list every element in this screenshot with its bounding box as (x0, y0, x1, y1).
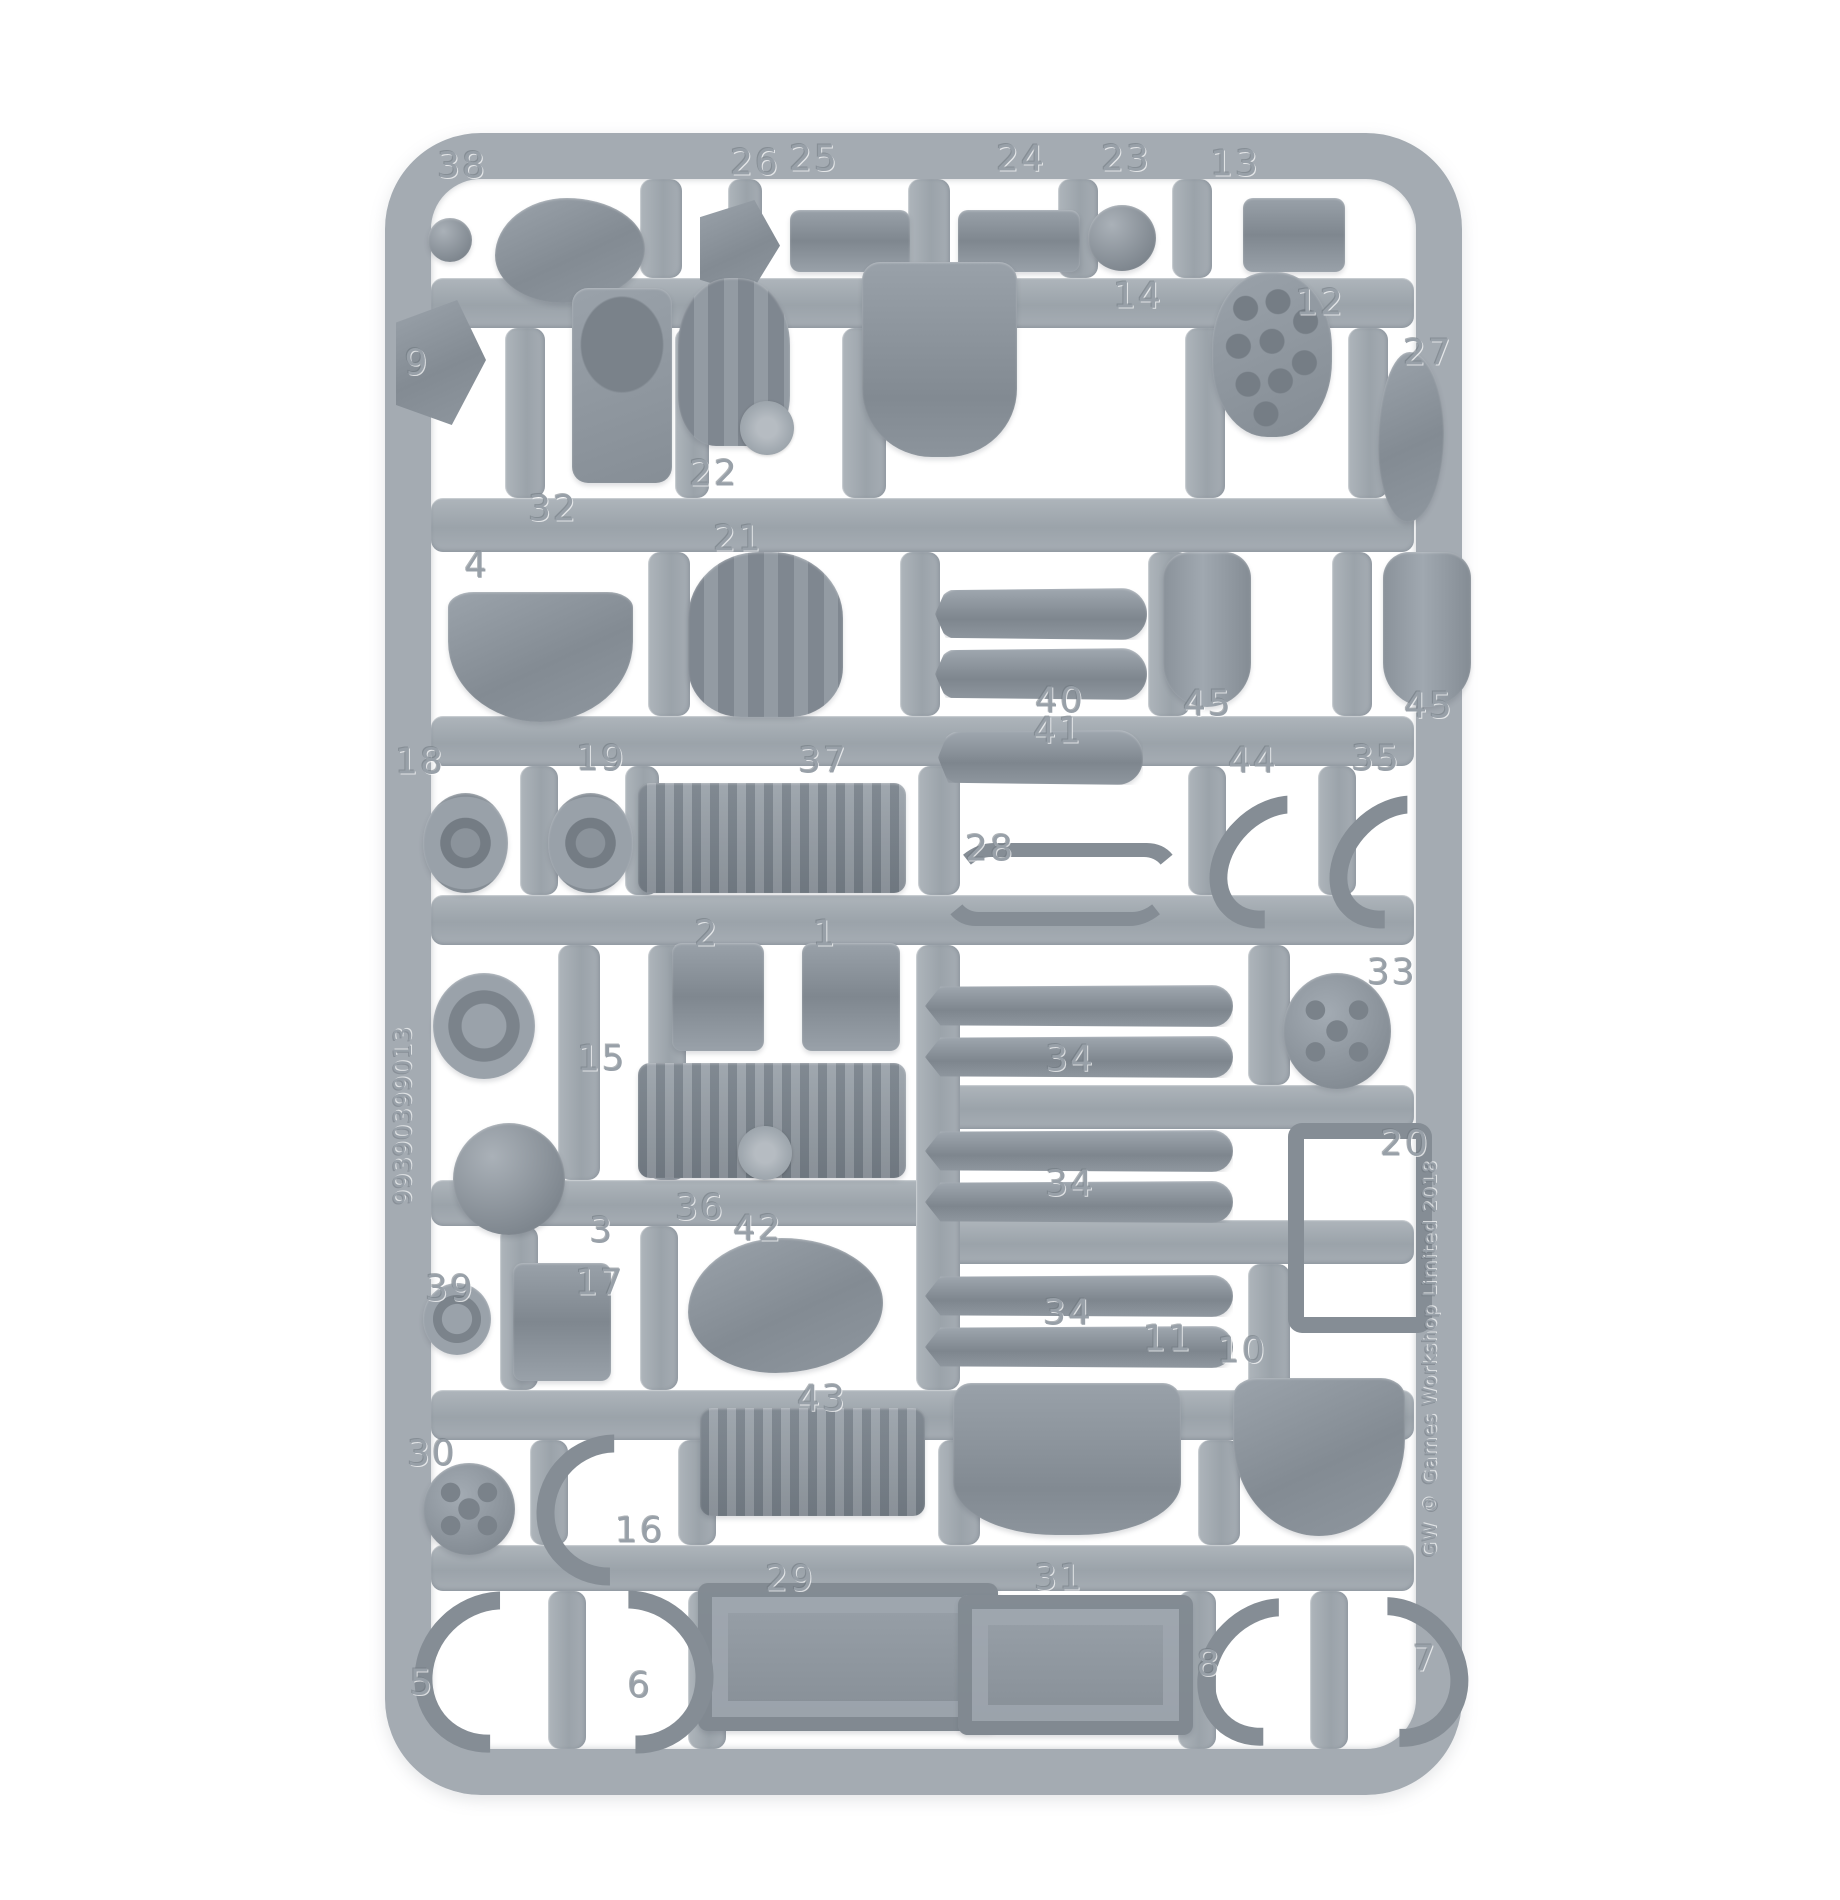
part-number-33-26: 33 (1367, 953, 1417, 994)
part-number-22-11: 22 (689, 454, 739, 495)
part-engine-block-a (638, 783, 906, 893)
rail-vertical-24 (640, 1226, 678, 1390)
product-code-embossed: 99390399013 (389, 995, 429, 1205)
part-number-7-47: 7 (1413, 1639, 1438, 1680)
part-number-4-13: 4 (465, 546, 490, 587)
part-hatch-plate (572, 288, 672, 483)
part-number-17-36: 17 (575, 1263, 625, 1304)
rail-vertical-5 (505, 328, 545, 498)
part-number-3-31: 3 (590, 1211, 615, 1252)
part-piston-rod-a1 (925, 985, 1233, 1027)
part-number-16-41: 16 (615, 1511, 665, 1552)
part-number-10-39: 10 (1217, 1331, 1267, 1372)
part-number-34-29: 34 (1045, 1164, 1095, 1205)
part-round-rosette (423, 1463, 515, 1555)
part-pulley-wheel-b (548, 793, 633, 893)
part-orb-sphere (453, 1123, 565, 1235)
part-porthole (433, 973, 535, 1079)
sprue-photo: 3826252423131412279322221440414545443518… (0, 0, 1840, 1900)
part-claw-gauntlet-b (688, 552, 843, 717)
part-torso-panel (862, 262, 1017, 457)
part-number-41-15: 41 (1033, 711, 1083, 752)
part-number-14-6: 14 (1113, 276, 1163, 317)
part-number-6-45: 6 (628, 1666, 653, 1707)
part-crested-shield (1233, 1378, 1405, 1536)
part-twin-cylinder-top (935, 588, 1147, 640)
copyright-embossed: GW © Games Workshop Limited 2018 (1419, 1112, 1459, 1557)
rail-vertical-11 (900, 552, 940, 716)
rail-vertical-13 (1332, 552, 1372, 716)
part-number-42-33: 42 (733, 1209, 783, 1250)
part-number-27-8: 27 (1403, 333, 1453, 374)
part-pulley-wheel-a (423, 793, 508, 893)
rail-horizontal-1 (431, 498, 1414, 552)
part-number-38-0: 38 (437, 146, 487, 187)
part-ammo-crate-b (958, 1595, 1193, 1735)
rail-vertical-10 (648, 552, 690, 716)
part-backpack-shield (448, 592, 633, 722)
part-clamp-b (802, 943, 900, 1051)
part-number-44-18: 44 (1228, 741, 1278, 782)
part-number-1-25: 1 (813, 914, 838, 955)
part-number-32-10: 32 (528, 489, 578, 530)
part-small-arm (1378, 352, 1444, 522)
part-number-37-22: 37 (798, 741, 848, 782)
part-ammo-crate-a (698, 1583, 998, 1731)
part-number-28-23: 28 (965, 829, 1015, 870)
part-curved-cowling (688, 1238, 883, 1373)
part-number-21-12: 21 (713, 519, 763, 560)
part-rail-gun-body (700, 1408, 925, 1516)
part-number-31-43: 31 (1034, 1558, 1084, 1599)
part-mold-hub-bottom (738, 1126, 792, 1180)
part-number-24-3: 24 (996, 139, 1046, 180)
part-number-2-24: 2 (695, 914, 720, 955)
part-number-11-38: 11 (1143, 1319, 1193, 1360)
part-number-5-44: 5 (410, 1663, 435, 1704)
rail-vertical-22 (1248, 945, 1290, 1085)
rail-vertical-0 (640, 179, 682, 278)
part-number-25-2: 25 (789, 139, 839, 180)
part-number-30-40: 30 (407, 1434, 457, 1475)
part-number-23-4: 23 (1101, 139, 1151, 180)
part-mold-hub-top (740, 401, 794, 455)
part-number-39-35: 39 (425, 1269, 475, 1310)
part-hex-housing (953, 1383, 1181, 1535)
part-fuel-tank-b (1383, 552, 1471, 707)
rail-vertical-4 (1172, 179, 1212, 278)
part-number-45-16: 45 (1183, 684, 1233, 725)
sprue-lattice: 3826252423131412279322221440414545443518… (0, 0, 1840, 1900)
part-number-34-28: 34 (1045, 1039, 1095, 1080)
part-clamp-a (672, 943, 764, 1051)
part-number-35-19: 35 (1351, 739, 1401, 780)
part-number-29-42: 29 (765, 1559, 815, 1600)
part-number-26-1: 26 (730, 143, 780, 184)
part-number-45-17: 45 (1404, 686, 1454, 727)
part-number-43-37: 43 (797, 1379, 847, 1420)
part-number-8-46: 8 (1197, 1644, 1222, 1685)
part-number-36-32: 36 (675, 1188, 725, 1229)
part-ball-joint-pin (428, 218, 472, 262)
part-number-34-30: 34 (1043, 1293, 1093, 1334)
part-number-15-27: 15 (577, 1039, 627, 1080)
part-number-12-7: 12 (1295, 283, 1345, 324)
part-number-9-9: 9 (405, 343, 430, 384)
part-number-18-20: 18 (395, 742, 445, 783)
part-number-13-5: 13 (1210, 144, 1260, 185)
part-twin-drum (1243, 198, 1345, 272)
part-number-19-21: 19 (576, 739, 626, 780)
part-orb-joint (1088, 205, 1156, 271)
